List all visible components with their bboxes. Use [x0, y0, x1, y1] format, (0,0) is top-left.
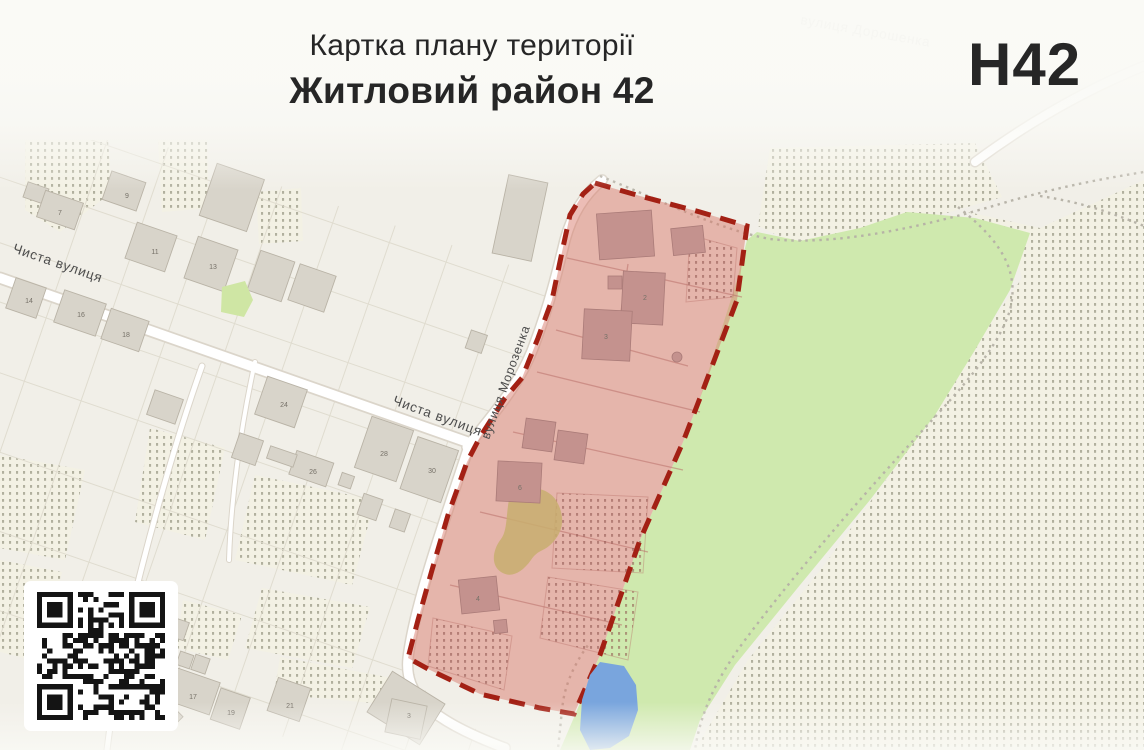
svg-text:7: 7 [58, 210, 62, 217]
svg-text:4: 4 [476, 596, 480, 603]
building [672, 352, 682, 362]
svg-text:28: 28 [380, 451, 388, 458]
territory-plan-card: вулиця Дорошенка Чиста вулиця Чиста вули… [0, 0, 1144, 750]
page-subtitle: Картка плану території [289, 26, 654, 67]
zone-code: H42 [968, 30, 1081, 99]
svg-text:2: 2 [643, 295, 647, 302]
building [554, 430, 588, 464]
building [522, 418, 556, 452]
building [608, 276, 622, 289]
building [496, 461, 542, 503]
svg-text:17: 17 [189, 694, 197, 701]
svg-text:16: 16 [77, 312, 85, 319]
svg-text:3: 3 [604, 334, 608, 341]
building [493, 619, 507, 633]
svg-text:13: 13 [209, 264, 217, 271]
header: Картка плану території Житловий район 42 [289, 26, 654, 115]
svg-text:30: 30 [428, 468, 436, 475]
svg-text:14: 14 [25, 298, 33, 305]
svg-text:11: 11 [151, 249, 158, 256]
qr-code [37, 592, 165, 720]
qr-card [24, 581, 178, 731]
building [458, 576, 499, 614]
building [596, 210, 654, 260]
svg-text:24: 24 [280, 402, 288, 409]
svg-text:18: 18 [122, 332, 130, 339]
svg-text:9: 9 [125, 193, 129, 200]
svg-text:6: 6 [518, 485, 522, 492]
page-title: Житловий район 42 [289, 67, 654, 115]
svg-text:26: 26 [309, 469, 317, 476]
building [671, 225, 706, 255]
